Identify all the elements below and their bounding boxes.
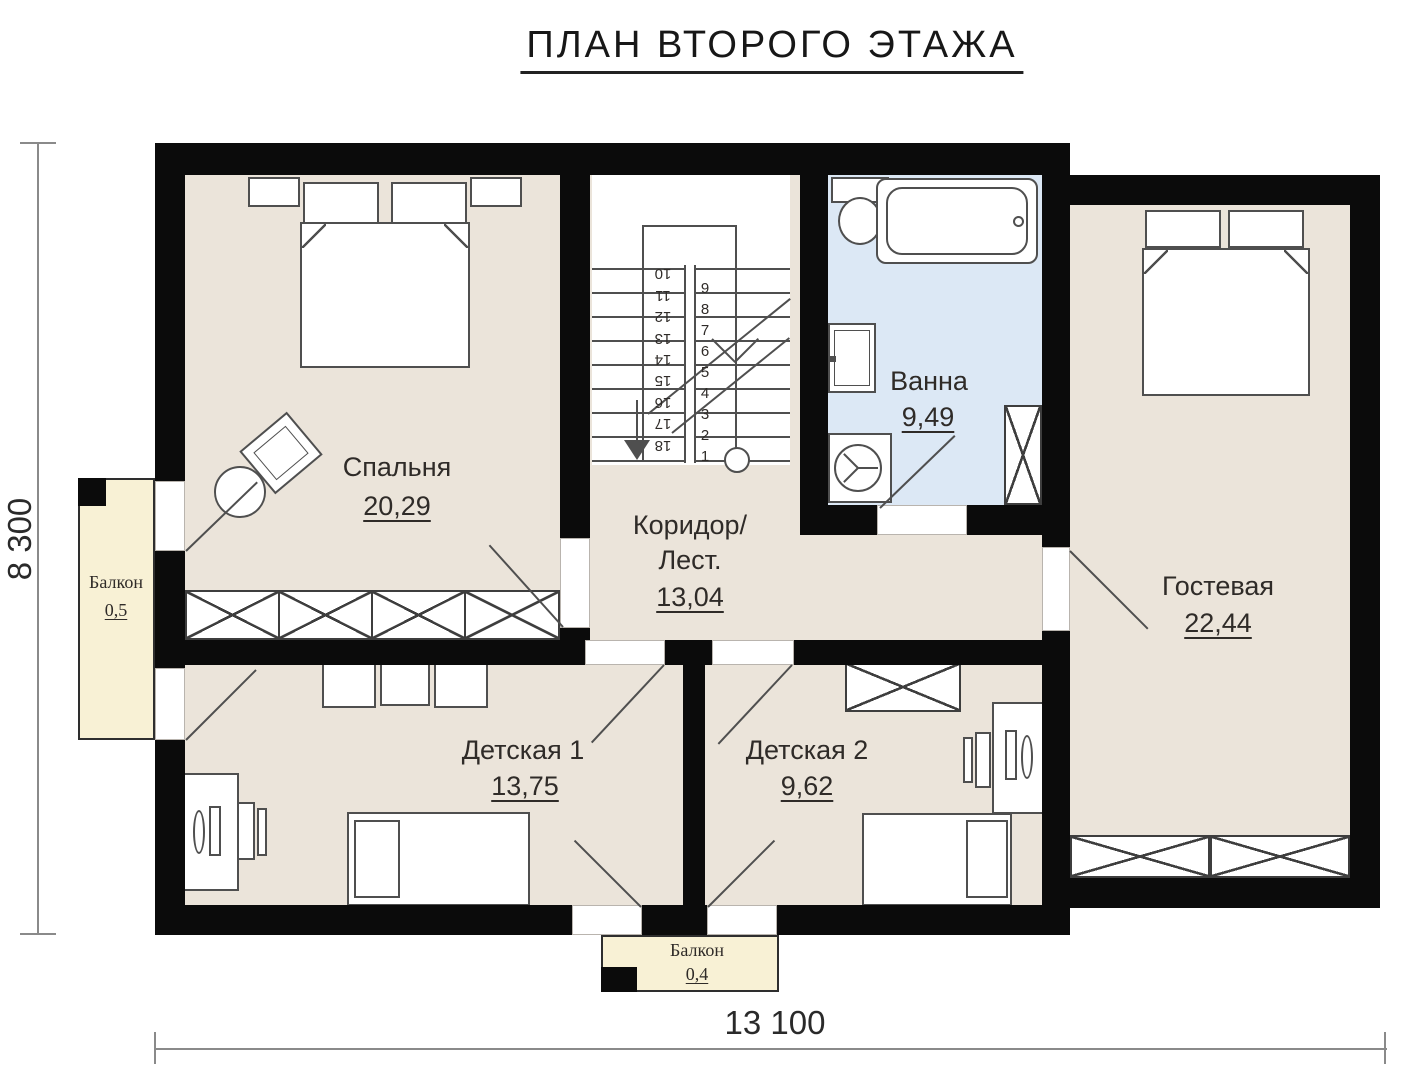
dimension-line-horizontal <box>155 1048 1387 1050</box>
chair-seat <box>237 802 255 860</box>
pillow <box>1228 210 1304 248</box>
nightstand <box>248 177 300 207</box>
stair-number: 14 <box>646 351 680 368</box>
duct-shaft <box>1004 405 1042 505</box>
stair-arrow-shaft <box>636 400 638 445</box>
stair-newel-circle <box>724 447 750 473</box>
sink-inner <box>834 330 870 386</box>
stair-number: 8 <box>688 301 722 318</box>
room-label-bathroom: Ванна <box>890 366 968 397</box>
room-label-guest: Гостевая <box>1162 571 1274 602</box>
stair-number: 6 <box>688 343 722 360</box>
door-opening-kids2 <box>712 640 794 665</box>
washing-machine-spoke <box>858 467 878 469</box>
dimension-tick <box>20 142 56 144</box>
blanket-fold <box>1144 250 1168 274</box>
blanket-fold <box>444 224 468 248</box>
monitor-icon <box>1021 735 1033 779</box>
chair-back <box>257 808 267 856</box>
wardrobe-cell <box>464 590 560 640</box>
dimension-height: 8 300 <box>1 459 39 619</box>
dimension-width: 13 100 <box>725 1004 826 1042</box>
round-table <box>214 466 266 518</box>
door-opening-bedroom <box>560 538 590 628</box>
room-area-bedroom: 20,29 <box>363 491 431 522</box>
wardrobe-cell <box>185 590 280 640</box>
floor-plan-canvas: ПЛАН ВТОРОГО ЭТАЖА 10 11 12 13 14 15 16 … <box>0 0 1414 1080</box>
pillow <box>966 820 1008 898</box>
computer-icon <box>209 806 221 856</box>
room-area-kids1: 13,75 <box>491 771 559 802</box>
room-label-kids1: Детская 1 <box>462 735 585 766</box>
blanket-fold <box>1284 250 1308 274</box>
desk <box>992 702 1046 814</box>
left-balcony-corner-post <box>78 478 106 506</box>
dimension-tick <box>20 933 56 935</box>
stair-number: 7 <box>688 322 722 339</box>
stair-number: 2 <box>688 427 722 444</box>
wardrobe-cell <box>278 590 373 640</box>
nightstand <box>470 177 522 207</box>
bottom-balcony-corner-post <box>601 967 637 992</box>
page-title: ПЛАН ВТОРОГО ЭТАЖА <box>520 24 1023 74</box>
wardrobe-cell <box>845 662 961 712</box>
bathtub-inner <box>886 187 1028 255</box>
stair-number: 10 <box>646 265 680 282</box>
door-opening-guest <box>1042 547 1070 631</box>
door-opening-bathroom <box>877 505 967 535</box>
room-label-kids2: Детская 2 <box>746 735 869 766</box>
room-area-guest: 22,44 <box>1184 608 1252 639</box>
stair-number: 13 <box>646 330 680 347</box>
shelf-unit <box>434 662 488 708</box>
room-area-corridor: 13,04 <box>656 582 724 613</box>
wardrobe-cell <box>1070 835 1210 878</box>
stair-number: 12 <box>646 308 680 325</box>
door-opening-kids1 <box>585 640 665 665</box>
room-label-corridor: Коридор/ <box>633 510 747 541</box>
wall-wing-top <box>1070 175 1380 205</box>
wall-top-main <box>155 143 1070 175</box>
stair-number: 16 <box>646 394 680 411</box>
room-label-corridor-2: Лест. <box>658 545 721 576</box>
pillow <box>303 182 379 224</box>
wall-wing-bottom <box>1070 878 1380 908</box>
balcony-left-area: 0,5 <box>105 600 128 621</box>
chair-seat <box>975 732 991 788</box>
chair-back <box>963 737 973 783</box>
balcony-door-opening-kids1-south <box>572 905 642 935</box>
blanket-fold <box>302 224 326 248</box>
stair-number: 1 <box>688 448 722 465</box>
armchair-seat <box>253 426 308 481</box>
wall-bedroom-bottom <box>155 640 590 665</box>
room-area-kids2: 9,62 <box>781 771 834 802</box>
stair-number: 3 <box>688 406 722 423</box>
wall-bathroom-left <box>800 143 828 535</box>
dimension-tick <box>1384 1032 1386 1064</box>
stair-number: 5 <box>688 364 722 381</box>
balcony-bottom-label: Балкон <box>670 940 724 961</box>
stair-number: 11 <box>646 287 680 304</box>
stair-number: 4 <box>688 385 722 402</box>
wall-separator-right <box>1042 143 1070 935</box>
wall-kids-divider <box>683 640 705 905</box>
monitor-icon <box>193 810 205 854</box>
wall-wing-right <box>1350 175 1380 908</box>
balcony-door-opening-kids1 <box>155 668 185 740</box>
stair-number: 18 <box>646 437 680 454</box>
dimension-tick <box>154 1032 156 1064</box>
stair-number: 9 <box>688 280 722 297</box>
balcony-bottom-area: 0,4 <box>686 964 709 985</box>
wardrobe-cell <box>1210 835 1350 878</box>
room-label-bedroom: Спальня <box>343 452 452 483</box>
balcony-left-label: Балкон <box>89 572 143 593</box>
balcony-door-opening-bedroom <box>155 481 185 551</box>
pillow <box>1145 210 1221 248</box>
shelf-unit <box>380 660 430 706</box>
stair-number: 17 <box>646 415 680 432</box>
bathtub-drain <box>1013 216 1024 227</box>
balcony-door-opening-kids2-south <box>707 905 777 935</box>
computer-icon <box>1005 730 1017 780</box>
stair-number: 15 <box>646 372 680 389</box>
shelf-unit <box>322 662 376 708</box>
pillow <box>354 820 400 898</box>
room-area-bathroom: 9,49 <box>902 402 955 433</box>
pillow <box>391 182 467 224</box>
wardrobe-cell <box>371 590 466 640</box>
